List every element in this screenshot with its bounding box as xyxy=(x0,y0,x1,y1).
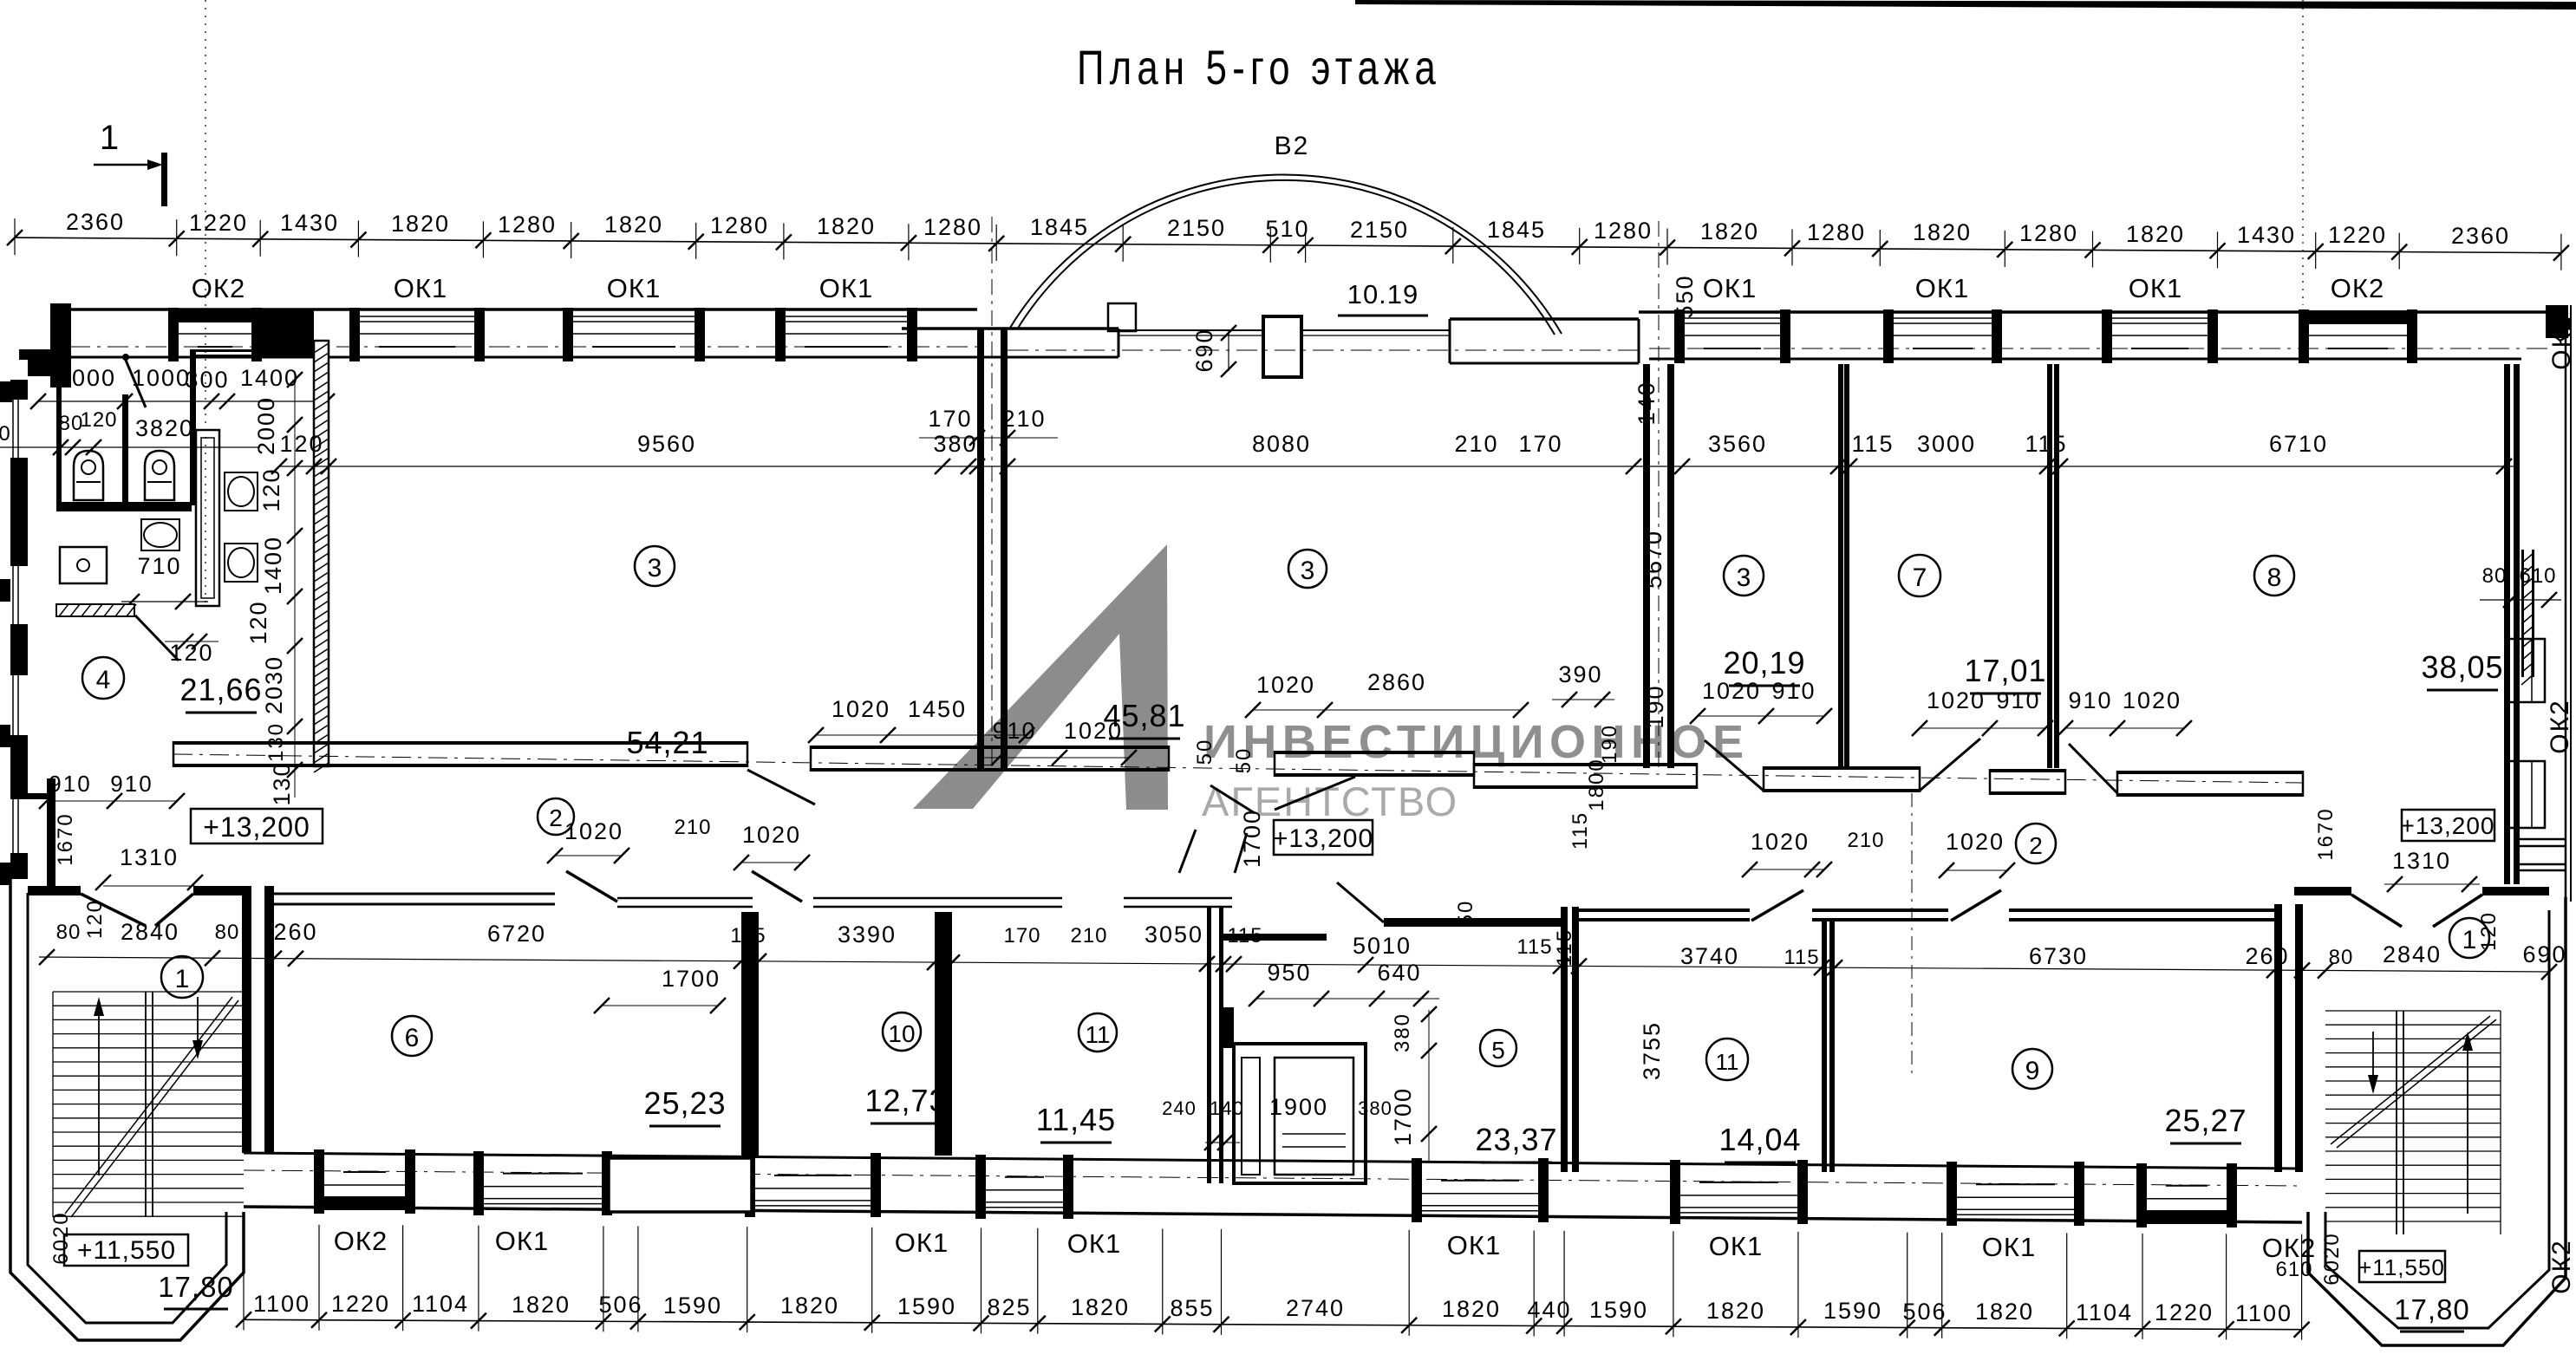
svg-text:1820: 1820 xyxy=(1913,219,1972,245)
svg-text:23,37: 23,37 xyxy=(1475,1122,1557,1157)
svg-text:ОК1: ОК1 xyxy=(495,1226,549,1256)
svg-text:1450: 1450 xyxy=(908,696,967,722)
svg-text:510: 510 xyxy=(1265,216,1309,242)
svg-text:1820: 1820 xyxy=(817,213,876,239)
svg-text:550: 550 xyxy=(1672,274,1698,318)
svg-text:1100: 1100 xyxy=(2235,1300,2292,1326)
svg-text:10.19: 10.19 xyxy=(1347,279,1419,309)
svg-text:3820: 3820 xyxy=(135,415,194,441)
svg-text:115: 115 xyxy=(2025,431,2067,457)
svg-text:9: 9 xyxy=(2025,1057,2040,1085)
svg-text:50: 50 xyxy=(1454,900,1477,927)
svg-text:3390: 3390 xyxy=(838,921,897,947)
svg-text:140: 140 xyxy=(1210,1097,1244,1119)
svg-text:1430: 1430 xyxy=(280,210,339,236)
svg-text:855: 855 xyxy=(1170,1295,1214,1321)
svg-text:17,01: 17,01 xyxy=(1964,653,2046,688)
svg-text:120: 120 xyxy=(245,600,271,644)
svg-text:+13,200: +13,200 xyxy=(1273,824,1373,853)
svg-text:115: 115 xyxy=(1568,811,1592,850)
svg-text:80: 80 xyxy=(56,921,82,944)
svg-text:1020: 1020 xyxy=(1946,829,2005,855)
svg-text:ОК1: ОК1 xyxy=(1067,1228,1121,1259)
svg-text:2: 2 xyxy=(549,804,563,831)
svg-text:3: 3 xyxy=(1737,563,1751,592)
svg-text:1280: 1280 xyxy=(1807,219,1866,245)
svg-text:130: 130 xyxy=(269,761,295,805)
svg-text:120: 120 xyxy=(169,640,213,666)
svg-text:1430: 1430 xyxy=(2237,222,2296,248)
svg-text:2000: 2000 xyxy=(253,396,279,455)
svg-text:ОК1: ОК1 xyxy=(1709,1231,1763,1261)
svg-text:5670: 5670 xyxy=(1640,530,1666,589)
svg-text:50: 50 xyxy=(1232,747,1255,774)
svg-text:1280: 1280 xyxy=(498,212,557,238)
svg-text:ОК1: ОК1 xyxy=(1982,1232,2036,1262)
svg-text:1670: 1670 xyxy=(2314,807,2338,860)
svg-text:+11,550: +11,550 xyxy=(2358,1254,2445,1280)
svg-text:1104: 1104 xyxy=(2076,1299,2133,1325)
svg-text:260: 260 xyxy=(2245,943,2289,969)
svg-text:1590: 1590 xyxy=(1823,1298,1882,1324)
svg-text:38,05: 38,05 xyxy=(2421,649,2503,685)
svg-text:190: 190 xyxy=(1642,684,1668,728)
svg-text:11: 11 xyxy=(1716,1049,1739,1075)
svg-text:5: 5 xyxy=(1491,1037,1505,1064)
svg-text:1820: 1820 xyxy=(1071,1294,1130,1320)
svg-text:ОК1: ОК1 xyxy=(1447,1230,1501,1260)
svg-text:1820: 1820 xyxy=(780,1293,839,1319)
svg-text:1845: 1845 xyxy=(1487,217,1546,243)
svg-text:ОК2: ОК2 xyxy=(2546,699,2574,754)
svg-text:1900: 1900 xyxy=(1269,1094,1328,1120)
svg-text:390: 390 xyxy=(1558,661,1602,687)
svg-text:ОК2: ОК2 xyxy=(2547,1239,2576,1294)
svg-text:1700: 1700 xyxy=(1390,1087,1416,1146)
svg-text:25,23: 25,23 xyxy=(643,1085,726,1121)
svg-text:4: 4 xyxy=(96,666,111,694)
svg-text:950: 950 xyxy=(1267,960,1311,986)
svg-text:6: 6 xyxy=(405,1024,420,1052)
svg-text:3000: 3000 xyxy=(1917,431,1976,457)
svg-text:2740: 2740 xyxy=(1286,1295,1345,1321)
svg-text:1020: 1020 xyxy=(1927,687,1986,713)
svg-text:1020: 1020 xyxy=(1256,672,1315,698)
svg-text:1700: 1700 xyxy=(662,966,721,992)
svg-text:910: 910 xyxy=(110,771,153,797)
svg-text:1020: 1020 xyxy=(1064,718,1123,744)
svg-text:2030: 2030 xyxy=(261,655,287,714)
svg-text:ОК1: ОК1 xyxy=(394,273,447,303)
svg-text:ОК2: ОК2 xyxy=(2547,315,2576,370)
svg-text:1280: 1280 xyxy=(923,214,982,240)
svg-text:1220: 1220 xyxy=(189,210,248,236)
svg-text:1820: 1820 xyxy=(604,212,663,238)
svg-text:0: 0 xyxy=(0,422,10,446)
svg-text:120: 120 xyxy=(80,408,117,432)
svg-text:506: 506 xyxy=(598,1292,642,1318)
svg-text:1220: 1220 xyxy=(331,1291,390,1317)
svg-text:ОК1: ОК1 xyxy=(895,1228,949,1258)
svg-text:3: 3 xyxy=(1301,557,1315,585)
svg-text:ОК2: ОК2 xyxy=(2331,273,2384,303)
svg-text:115: 115 xyxy=(1516,935,1552,959)
svg-text:20,19: 20,19 xyxy=(1723,645,1805,680)
svg-text:1400: 1400 xyxy=(240,365,299,391)
svg-text:6710: 6710 xyxy=(2269,431,2328,457)
svg-text:1590: 1590 xyxy=(1589,1297,1648,1323)
svg-text:640: 640 xyxy=(1377,960,1421,986)
svg-text:ОК1: ОК1 xyxy=(1915,273,1969,303)
svg-text:1100: 1100 xyxy=(253,1291,310,1317)
svg-text:6020: 6020 xyxy=(2320,1232,2344,1285)
svg-text:3740: 3740 xyxy=(1680,943,1739,969)
svg-text:80: 80 xyxy=(2482,564,2508,588)
svg-text:6720: 6720 xyxy=(487,921,546,947)
svg-text:140: 140 xyxy=(1634,381,1660,425)
svg-text:1020: 1020 xyxy=(742,822,801,848)
svg-text:210: 210 xyxy=(1454,431,1498,457)
svg-text:7: 7 xyxy=(1913,563,1927,592)
svg-text:115: 115 xyxy=(1784,946,1819,969)
svg-text:ОК2: ОК2 xyxy=(334,1226,388,1256)
svg-text:1280: 1280 xyxy=(710,212,769,238)
svg-text:+13,200: +13,200 xyxy=(2401,812,2495,839)
svg-text:380: 380 xyxy=(1358,1097,1392,1119)
svg-text:120: 120 xyxy=(258,467,284,511)
svg-text:910: 910 xyxy=(1771,678,1816,704)
svg-text:1800: 1800 xyxy=(1585,758,1608,811)
svg-text:3050: 3050 xyxy=(1145,921,1203,947)
svg-text:6730: 6730 xyxy=(2029,943,2088,969)
svg-text:2840: 2840 xyxy=(2383,941,2442,967)
svg-text:210: 210 xyxy=(1001,406,1046,432)
svg-text:1590: 1590 xyxy=(897,1293,956,1319)
svg-text:3560: 3560 xyxy=(1708,431,1767,457)
svg-text:1020: 1020 xyxy=(1702,678,1761,704)
svg-text:610: 610 xyxy=(2519,564,2556,588)
svg-text:1: 1 xyxy=(100,119,119,157)
svg-text:1220: 1220 xyxy=(2328,222,2387,248)
svg-text:1820: 1820 xyxy=(1706,1298,1765,1324)
svg-text:1020: 1020 xyxy=(831,696,890,722)
svg-text:+11,550: +11,550 xyxy=(77,1236,176,1265)
svg-text:17,80: 17,80 xyxy=(2394,1293,2470,1325)
svg-text:710: 710 xyxy=(137,553,181,579)
svg-text:1280: 1280 xyxy=(1594,218,1653,244)
svg-text:80: 80 xyxy=(2329,946,2354,969)
svg-text:1: 1 xyxy=(2462,926,2477,954)
svg-text:B2: B2 xyxy=(1275,132,1310,160)
svg-text:2360: 2360 xyxy=(66,209,125,235)
svg-text:2150: 2150 xyxy=(1350,217,1409,243)
svg-text:ОК1: ОК1 xyxy=(607,273,661,303)
svg-text:115: 115 xyxy=(1851,431,1894,457)
svg-text:ОК1: ОК1 xyxy=(2129,273,2182,303)
svg-text:11: 11 xyxy=(1085,1021,1110,1048)
svg-text:1820: 1820 xyxy=(391,211,450,237)
svg-text:21,66: 21,66 xyxy=(179,672,262,707)
svg-text:2360: 2360 xyxy=(2451,223,2510,249)
svg-text:1310: 1310 xyxy=(2392,848,2451,874)
svg-text:1845: 1845 xyxy=(1030,214,1089,240)
svg-text:1820: 1820 xyxy=(1442,1296,1501,1322)
svg-text:3755: 3755 xyxy=(1639,1021,1665,1080)
svg-text:80: 80 xyxy=(215,921,240,944)
svg-text:825: 825 xyxy=(987,1294,1031,1320)
svg-text:260: 260 xyxy=(273,919,317,945)
svg-text:ОК2: ОК2 xyxy=(192,273,245,303)
svg-text:9560: 9560 xyxy=(637,431,696,457)
svg-text:210: 210 xyxy=(1070,924,1107,947)
svg-text:1820: 1820 xyxy=(2126,221,2185,247)
svg-text:14,04: 14,04 xyxy=(1718,1122,1801,1157)
svg-text:1020: 1020 xyxy=(1751,829,1810,855)
svg-text:2860: 2860 xyxy=(1367,669,1426,695)
svg-text:50: 50 xyxy=(1193,739,1216,765)
svg-text:1020: 1020 xyxy=(564,818,623,844)
svg-text:1280: 1280 xyxy=(2019,220,2078,246)
svg-text:610: 610 xyxy=(2275,1258,2312,1281)
svg-text:210: 210 xyxy=(1847,829,1884,852)
svg-text:240: 240 xyxy=(1162,1097,1197,1119)
svg-text:12,73: 12,73 xyxy=(864,1083,947,1118)
svg-text:1590: 1590 xyxy=(663,1293,722,1319)
svg-text:1: 1 xyxy=(175,965,190,993)
svg-text:115: 115 xyxy=(730,924,766,947)
svg-text:170: 170 xyxy=(1518,431,1562,457)
svg-text:ОК1: ОК1 xyxy=(819,273,873,303)
svg-text:План 5-го этажа: План 5-го этажа xyxy=(1077,40,1441,94)
svg-text:910: 910 xyxy=(1996,687,2040,713)
svg-text:440: 440 xyxy=(1527,1297,1571,1323)
svg-text:11,45: 11,45 xyxy=(1036,1102,1116,1137)
svg-text:5010: 5010 xyxy=(1353,933,1412,959)
svg-text:1020: 1020 xyxy=(2123,687,2181,713)
svg-text:190: 190 xyxy=(1598,724,1621,764)
svg-text:17,80: 17,80 xyxy=(158,1271,234,1303)
svg-text:2150: 2150 xyxy=(1167,215,1226,241)
svg-text:380: 380 xyxy=(1391,1013,1414,1052)
svg-text:170: 170 xyxy=(928,406,972,432)
svg-text:8: 8 xyxy=(2267,563,2282,592)
svg-text:1670: 1670 xyxy=(54,812,77,865)
svg-text:8080: 8080 xyxy=(1252,431,1311,457)
svg-text:1820: 1820 xyxy=(1700,218,1759,244)
svg-text:1000: 1000 xyxy=(57,365,116,391)
svg-text:690: 690 xyxy=(2522,941,2566,967)
svg-text:690: 690 xyxy=(1191,328,1217,372)
svg-text:1310: 1310 xyxy=(120,844,179,870)
svg-text:1000: 1000 xyxy=(132,365,191,391)
svg-text:2840: 2840 xyxy=(121,919,179,945)
svg-text:10: 10 xyxy=(888,1020,915,1047)
svg-text:+13,200: +13,200 xyxy=(203,811,310,843)
svg-text:3: 3 xyxy=(648,554,662,583)
svg-text:1104: 1104 xyxy=(412,1291,469,1317)
svg-text:2: 2 xyxy=(2029,832,2043,859)
svg-text:115: 115 xyxy=(1227,924,1262,947)
svg-text:1400: 1400 xyxy=(260,536,286,595)
svg-text:1820: 1820 xyxy=(512,1292,571,1318)
svg-text:210: 210 xyxy=(674,816,711,839)
svg-text:120: 120 xyxy=(279,431,323,457)
svg-text:1220: 1220 xyxy=(2155,1299,2214,1325)
svg-text:ОК1: ОК1 xyxy=(1703,273,1757,303)
svg-text:170: 170 xyxy=(1003,924,1040,947)
svg-text:1700: 1700 xyxy=(1239,809,1265,868)
svg-text:1820: 1820 xyxy=(1975,1299,2034,1325)
svg-text:910: 910 xyxy=(2068,687,2112,713)
svg-text:25,27: 25,27 xyxy=(2164,1103,2247,1138)
svg-text:506: 506 xyxy=(1902,1299,1947,1325)
svg-text:6020: 6020 xyxy=(49,1211,73,1264)
